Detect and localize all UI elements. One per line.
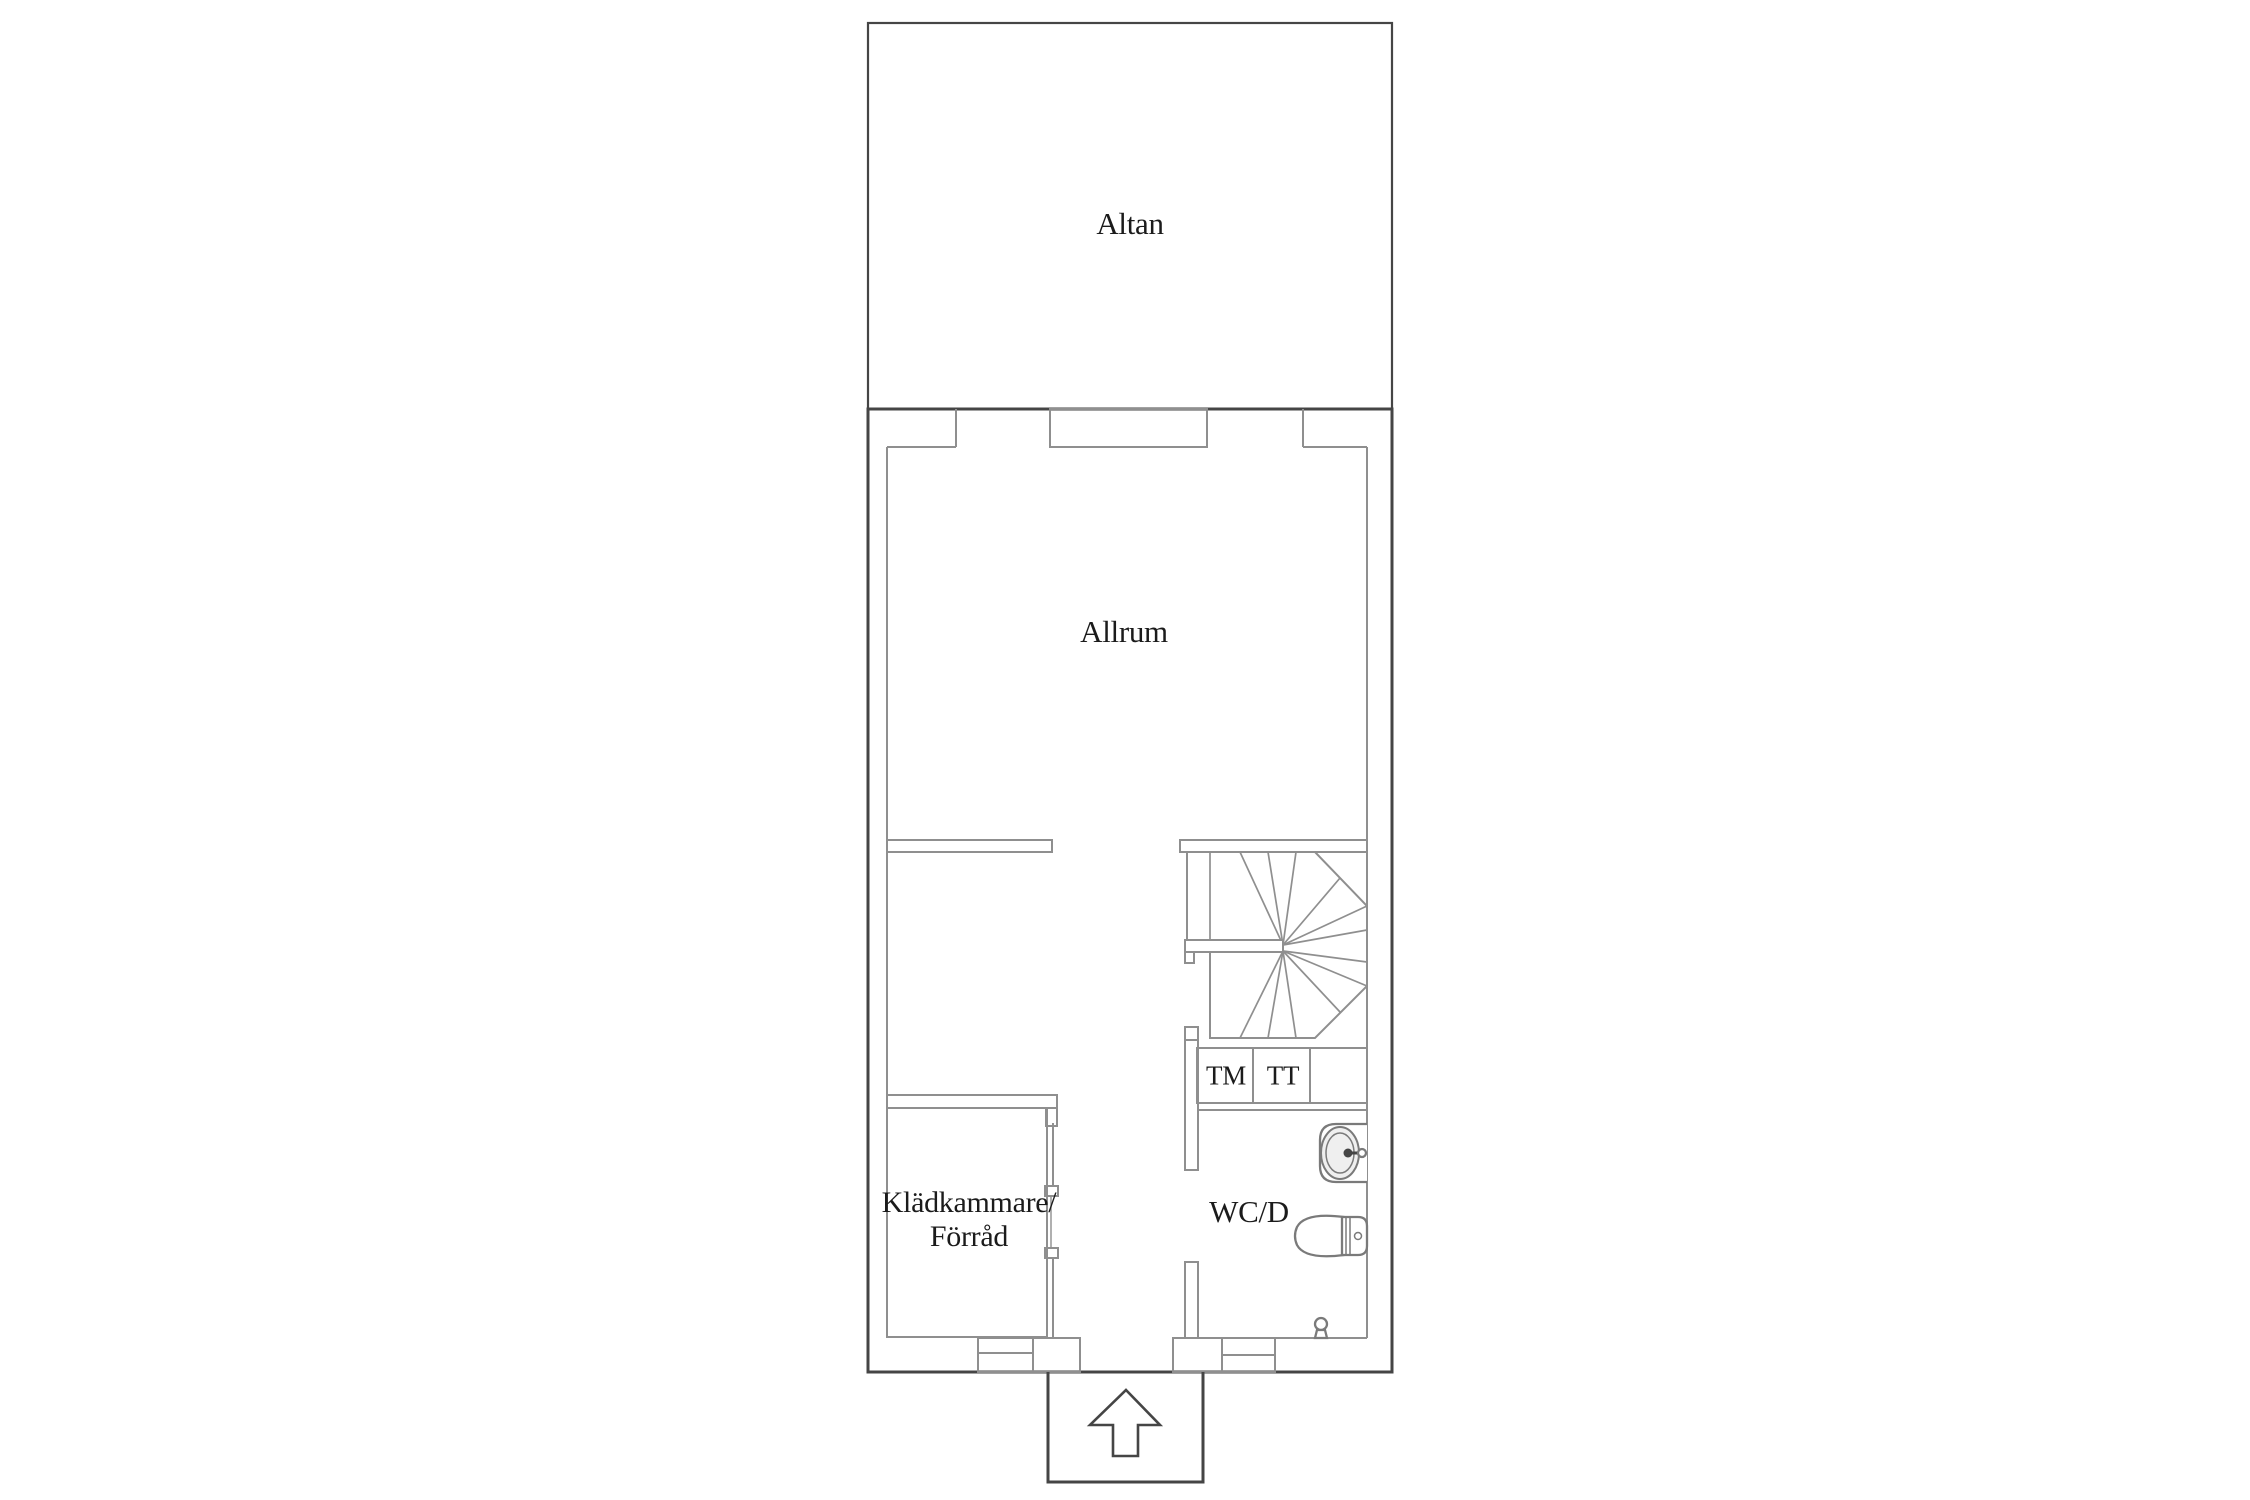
entry-steps [978, 1338, 1275, 1372]
appliance-label-tt: TT [1267, 1061, 1299, 1092]
entrance-arrow-icon [1090, 1390, 1160, 1456]
toilet-icon [1295, 1216, 1367, 1257]
room-label-altan: Altan [1096, 206, 1163, 242]
door-stop-icon [1315, 1318, 1327, 1338]
room-label-wc: WC/D [1209, 1194, 1289, 1230]
floor-plan: Altan Allrum Klädkammare/ Förråd WC/D TM… [0, 0, 2250, 1500]
terrace-door-wall [887, 409, 1367, 447]
room-label-kladkammare-line2: Förråd [882, 1220, 1057, 1254]
room-label-allrum: Allrum [1080, 614, 1168, 650]
staircase [1185, 852, 1367, 1038]
appliance-label-tm: TM [1206, 1061, 1246, 1092]
sink-icon [1320, 1124, 1367, 1182]
room-label-kladkammare: Klädkammare/ Förråd [882, 1186, 1057, 1254]
room-label-kladkammare-line1: Klädkammare/ [882, 1186, 1057, 1220]
